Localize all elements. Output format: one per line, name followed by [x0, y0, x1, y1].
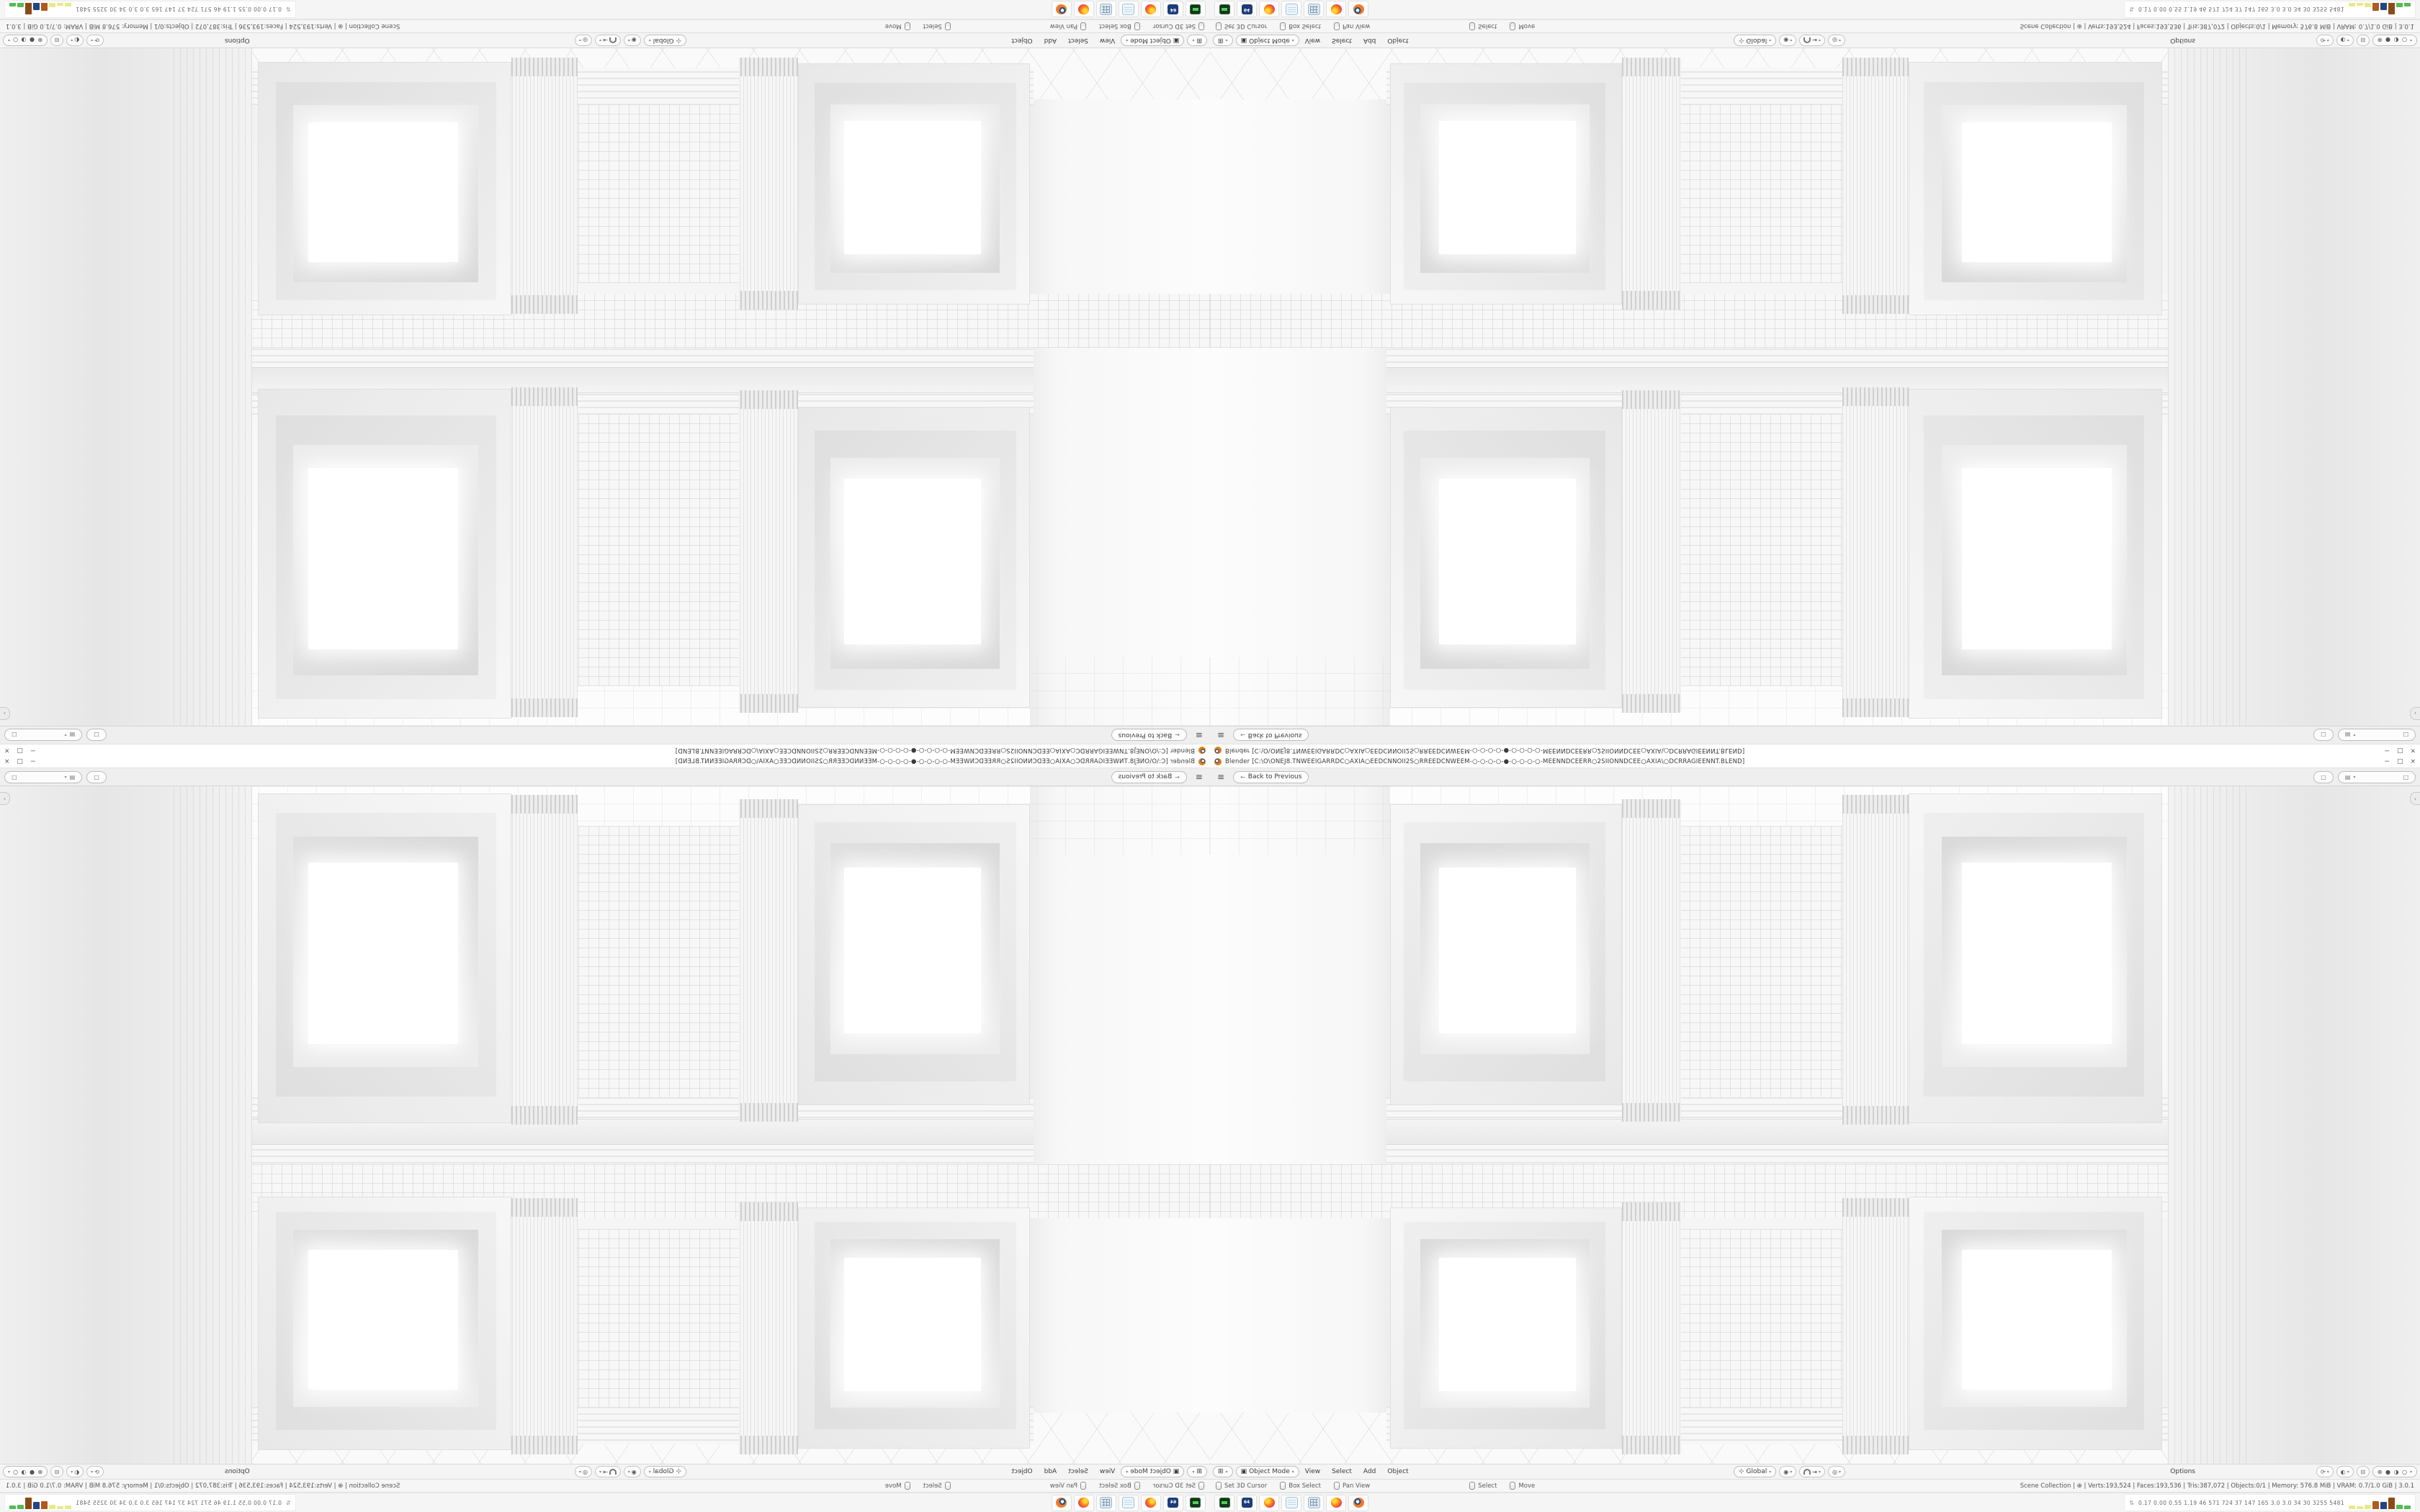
window-glow [1962, 1250, 2112, 1390]
mouse-icon [945, 22, 951, 30]
status-hint-set-3d-cursor: Set 3D Cursor [1153, 22, 1204, 30]
scene-icon: □ [94, 732, 99, 739]
overlays-icon: ◐ [2341, 37, 2346, 44]
minimize-button[interactable]: − [2384, 747, 2390, 754]
viewport-shading-group[interactable]: ⊕ ● ◑ ○ ▾ [3, 35, 48, 46]
snapping-toggle[interactable]: ⇥ ▾ [595, 1466, 621, 1477]
minimize-button[interactable]: − [2384, 758, 2390, 765]
window-titlebar[interactable]: Blender [C:\O\ONEJ8.TNWEEIGARRDC○AXIA○EE… [0, 756, 1210, 768]
chevron-down-icon: ▾ [1819, 38, 1821, 43]
terminal-icon [1191, 1498, 1201, 1508]
terminal-icon [1219, 4, 1230, 14]
topbar-menu-icon[interactable]: ≡ [1214, 730, 1227, 740]
menu-object[interactable]: Object [1005, 1468, 1038, 1475]
graph-bar [49, 3, 55, 7]
windows-taskbar: ⇅ 0.17 0.00 0.55 1.19 46 571 724 37 147 … [1210, 0, 2420, 19]
taskbar-app-calculator[interactable] [1304, 1495, 1324, 1511]
firefox-icon [1264, 1498, 1275, 1508]
menu-object[interactable]: Object [1005, 37, 1038, 44]
magnet-icon [609, 1469, 617, 1475]
graph-bar [2357, 1506, 2363, 1509]
graph-bar [2357, 3, 2363, 6]
taskbar-app-firefox-2[interactable] [1326, 1495, 1346, 1511]
orientation-icon: ⊹ [676, 37, 681, 44]
back-to-previous-button[interactable]: ← Back to Previous [1111, 771, 1187, 783]
scene-left-wall [1210, 48, 1390, 726]
taskbar-app-terminal[interactable] [1214, 1, 1234, 18]
window-frame [258, 62, 511, 315]
chevron-down-icon: ▾ [2327, 1470, 2329, 1475]
shading-modes-icons: ⊕ ● ◑ ○ [12, 37, 42, 44]
taskbar-app-7zip[interactable] [1163, 1, 1183, 18]
window-frame [1390, 63, 1622, 305]
kaleidoscope-stage: Blender [C:\O\ONEJ8.TNWEEIGARRDC○AXIA○EE… [0, 0, 2420, 1512]
taskbar-app-7zip[interactable] [1237, 1495, 1257, 1511]
snap-target-icon: ⇥ [1812, 1469, 1817, 1475]
viewport-header: ⊞ ▾ ▣ Object Mode ▾ View Select Add Obje… [1210, 1464, 2420, 1480]
graph-bar [17, 1505, 24, 1509]
menu-view[interactable]: View [1094, 37, 1121, 44]
restore-button[interactable]: □ [17, 747, 24, 754]
quadrant-bottom-right: Blender [C:\O\ONEJ8.TNWEEIGARRDC○AXIA○EE… [1210, 756, 2420, 1512]
xray-toggle[interactable]: ⊟ [50, 1466, 63, 1477]
transform-orientation-dropdown[interactable]: ⊹ Global ▾ [1734, 35, 1776, 46]
proportional-editing-toggle[interactable]: ◎ ▾ [575, 35, 592, 46]
menu-select[interactable]: Select [1326, 1468, 1358, 1475]
blender-logo-icon [1214, 758, 1222, 765]
back-to-previous-label: Back to Previous [1119, 732, 1173, 739]
quadrant-bottom-left-mirrored: Blender [C:\O\ONEJ8.TNWEEIGARRDC○AXIA○EE… [0, 756, 1210, 1512]
pivot-point-dropdown[interactable]: ◉ ▾ [1779, 1466, 1796, 1477]
chevron-down-icon: ▾ [65, 733, 67, 738]
status-hint-pan-view: Pan View [1050, 22, 1086, 30]
options-dropdown[interactable]: Options [2164, 1468, 2201, 1475]
menu-add[interactable]: Add [1039, 37, 1062, 44]
object-mode-icon: ▣ [1173, 1468, 1180, 1475]
scene-selector[interactable]: □ [2313, 771, 2334, 783]
viewport-header: ⊞ ▾ ▣ Object Mode ▾ View Select Add Obje… [1210, 32, 2420, 48]
show-gizmo-dropdown[interactable]: ⟳ ▾ [86, 35, 104, 46]
blender-logo-icon [1198, 747, 1206, 754]
menu-add[interactable]: Add [1039, 1468, 1062, 1475]
hint-label: Pan View [1343, 23, 1370, 30]
xray-icon: ⊟ [55, 1469, 60, 1475]
7zip-icon [1242, 4, 1252, 14]
close-button[interactable]: × [2410, 758, 2416, 765]
minimize-button[interactable]: − [30, 758, 36, 765]
graph-bar [41, 1501, 48, 1509]
transform-orientation-dropdown[interactable]: ⊹ Global ▾ [1734, 1466, 1776, 1477]
chevron-down-icon: ▾ [1790, 1470, 1792, 1475]
hardware-stats-deskband[interactable]: ⇅ 0.17 0.00 0.55 1.19 46 571 724 37 147 … [2124, 1, 2416, 18]
view-layer-icon: ▤ [2345, 774, 2351, 780]
window-glow [308, 468, 458, 649]
menu-select[interactable]: Select [1326, 37, 1358, 44]
window-glow [1439, 479, 1576, 644]
graph-bar [2388, 1498, 2395, 1509]
chevron-down-icon: ▾ [579, 1470, 581, 1475]
firefox-icon [1331, 4, 1342, 14]
status-hint-move: Move [885, 22, 910, 30]
notepad-icon [1286, 1497, 1298, 1508]
blender-topbar: ≡ ← Back to Previous □ ▤ ▾ □ [1210, 726, 2420, 744]
xray-icon: ⊟ [2360, 1469, 2365, 1475]
taskbar-app-blender[interactable] [1348, 1495, 1368, 1511]
show-gizmo-dropdown[interactable]: ⟳ ▾ [86, 1466, 104, 1477]
shading-modes-icons: ⊕ ● ◑ ○ [2378, 1469, 2408, 1475]
hint-label: Box Select [1099, 1482, 1131, 1490]
menu-add[interactable]: Add [1358, 1468, 1381, 1475]
terminal-icon [1219, 1498, 1230, 1508]
restore-button[interactable]: □ [17, 758, 24, 765]
shading-modes-icons: ⊕ ● ◑ ○ [2378, 37, 2408, 44]
taskbar-app-firefox[interactable] [1141, 1495, 1161, 1511]
xray-toggle[interactable]: ⊟ [2357, 35, 2370, 46]
chevron-down-icon: ▾ [8, 1470, 10, 1475]
blender-window: Blender [C:\O\ONEJ8.TNWEEIGARRDC○AXIA○EE… [0, 0, 1210, 756]
show-overlays-dropdown[interactable]: ◐ ▾ [2336, 35, 2354, 46]
mouse-icon [1280, 22, 1286, 30]
show-gizmo-dropdown[interactable]: ⟳ ▾ [2316, 35, 2334, 46]
taskbar-app-calculator[interactable] [1096, 1495, 1116, 1511]
status-hint-set-3d-cursor: Set 3D Cursor [1153, 1482, 1204, 1490]
pivot-icon: ◉ [1783, 1469, 1788, 1475]
status-hint-box-select: Box Select [1280, 22, 1321, 30]
proportional-editing-toggle[interactable]: ◎ ▾ [1828, 1466, 1845, 1477]
viewport-shading-group[interactable]: ⊕ ● ◑ ○ ▾ [2372, 35, 2417, 46]
7zip-icon [1242, 1498, 1252, 1508]
menu-view[interactable]: View [1299, 37, 1326, 44]
hint-label: Move [1518, 23, 1535, 30]
scene-right-wall [0, 48, 252, 726]
window-frame [258, 793, 511, 1123]
transform-orientation-dropdown[interactable]: ⊹ Global ▾ [644, 1466, 686, 1477]
taskbar-app-notepad[interactable] [1119, 1, 1139, 18]
window-frame [798, 407, 1030, 708]
snapping-toggle[interactable]: ⇥ ▾ [1799, 1466, 1825, 1477]
back-to-previous-button[interactable]: ← Back to Previous [1111, 729, 1187, 742]
view-layer-name-blank [2358, 732, 2400, 739]
mode-dropdown[interactable]: ▣ Object Mode ▾ [1121, 1466, 1184, 1477]
snapping-toggle[interactable]: ⇥ ▾ [595, 35, 621, 46]
chevron-down-icon: ▾ [1192, 38, 1194, 43]
graph-bar [65, 3, 71, 6]
graph-bar [33, 1502, 40, 1509]
window-frame [258, 389, 511, 719]
graph-bar [2372, 3, 2379, 11]
window-glow [308, 863, 458, 1044]
blender-logo-icon [1198, 758, 1206, 765]
window-titlebar[interactable]: Blender [C:\O\ONEJ8.TNWEEIGARRDC○AXIA○EE… [1210, 756, 2420, 768]
xray-icon: ⊟ [2360, 37, 2365, 44]
pivot-point-dropdown[interactable]: ◉ ▾ [624, 35, 641, 46]
chevron-down-icon: ▾ [2410, 38, 2412, 43]
graph-bar [9, 1506, 16, 1509]
transform-orientation-dropdown[interactable]: ⊹ Global ▾ [644, 35, 686, 46]
mouse-icon [945, 1482, 951, 1490]
window-title: Blender [C:\O\ONEJ8.TNWEEIGARRDC○AXIA○EE… [1225, 747, 2375, 754]
taskbar-app-firefox[interactable] [1141, 1, 1161, 18]
chevron-down-icon: ▾ [1839, 38, 1841, 43]
scene-grid-wall-upper [578, 387, 740, 686]
status-hint-set-3d-cursor: Set 3D Cursor [1216, 1482, 1267, 1490]
scene-pilaster [1622, 390, 1681, 713]
window-glow [1962, 863, 2112, 1044]
stats-arrows-icon: ⇅ [286, 1500, 291, 1506]
taskbar-app-blender[interactable] [1052, 1495, 1072, 1511]
window-glow [844, 868, 981, 1033]
sidebar-toggle-tab[interactable]: ‹ [2410, 707, 2420, 720]
blender-icon [1353, 1498, 1364, 1508]
show-overlays-dropdown[interactable]: ◐ ▾ [66, 1466, 84, 1477]
hardware-stats-values: 0.17 0.00 0.55 1.19 46 571 724 37 147 16… [76, 1500, 282, 1506]
mode-dropdown[interactable]: ▣ Object Mode ▾ [1121, 35, 1184, 46]
editor-type-selector[interactable]: ⊞ ▾ [1187, 35, 1207, 46]
proportional-editing-toggle[interactable]: ◎ ▾ [575, 1466, 592, 1477]
taskbar-app-notepad[interactable] [1119, 1495, 1139, 1511]
scene-pilaster [1842, 1198, 1909, 1454]
mouse-icon [1198, 22, 1204, 30]
gizmo-icon: ⟳ [94, 37, 99, 44]
taskbar-app-calculator[interactable] [1096, 1, 1116, 18]
chevron-down-icon: ▾ [2410, 1470, 2412, 1475]
3d-viewport-canvas[interactable]: ‹ [0, 786, 1210, 1464]
scene-pilaster [511, 58, 578, 314]
taskbar-app-terminal[interactable] [1186, 1, 1206, 18]
minimize-button[interactable]: − [30, 747, 36, 754]
menu-add[interactable]: Add [1358, 37, 1381, 44]
scene-left-wall [1030, 48, 1210, 726]
firefox-icon [1146, 1498, 1157, 1508]
mode-dropdown[interactable]: ▣ Object Mode ▾ [1236, 35, 1299, 46]
proportional-icon: ◎ [1832, 37, 1837, 44]
copy-icon: □ [2403, 774, 2408, 780]
status-bar: Set 3D Cursor Box Select Pan View Select [1210, 19, 2420, 32]
object-mode-icon: ▣ [1241, 1468, 1247, 1475]
chevron-down-icon: ▾ [71, 1470, 73, 1475]
menu-view[interactable]: View [1094, 1468, 1121, 1475]
hint-label: Pan View [1343, 1482, 1370, 1490]
gizmo-icon: ⟳ [94, 1469, 99, 1475]
back-to-previous-label: Back to Previous [1119, 773, 1173, 780]
menu-view[interactable]: View [1299, 1468, 1326, 1475]
show-overlays-dropdown[interactable]: ◐ ▾ [2336, 1466, 2354, 1477]
window-glow [1439, 868, 1576, 1033]
options-dropdown[interactable]: Options [219, 37, 256, 44]
view-layer-selector[interactable]: ▤ ▾ □ [4, 729, 82, 742]
copy-icon: □ [12, 732, 17, 739]
proportional-editing-toggle[interactable]: ◎ ▾ [1828, 35, 1845, 46]
editor-type-selector[interactable]: ⊞ ▾ [1213, 1466, 1233, 1477]
status-hint-move: Move [1510, 22, 1535, 30]
scene-statistics: Scene Collection | ⊕ | Verts:193,524 | F… [6, 23, 400, 30]
object-mode-icon: ▣ [1241, 37, 1247, 44]
view-layer-selector[interactable]: ▤ ▾ □ [2338, 729, 2416, 742]
3d-viewport-canvas[interactable]: ‹ [1210, 786, 2420, 1464]
scene-pilaster [739, 390, 798, 713]
mouse-icon [1080, 22, 1086, 30]
viewport-shading-group[interactable]: ⊕ ● ◑ ○ ▾ [2372, 1466, 2417, 1477]
window-frame [1909, 793, 2162, 1123]
view-layer-icon: ▤ [70, 774, 76, 780]
scene-right-wall [2168, 786, 2420, 1464]
menu-select[interactable]: Select [1062, 37, 1094, 44]
window-titlebar[interactable]: Blender [C:\O\ONEJ8.TNWEEIGARRDC○AXIA○EE… [1210, 744, 2420, 756]
orientation-icon: ⊹ [676, 1468, 681, 1475]
view-layer-selector[interactable]: ▤ ▾ □ [2338, 771, 2416, 783]
graph-bar [2404, 1506, 2411, 1509]
viewport-shading-group[interactable]: ⊕ ● ◑ ○ ▾ [3, 1466, 48, 1477]
sidebar-toggle-tab[interactable]: ‹ [0, 707, 10, 720]
taskbar-app-blender[interactable] [1052, 1, 1072, 18]
window-frame [1390, 407, 1622, 708]
scene-grid-wall-lower [578, 1229, 740, 1413]
stats-arrows-icon: ⇅ [2129, 1500, 2134, 1506]
hint-label: Select [923, 1482, 942, 1490]
taskbar-graph [2349, 1496, 2411, 1509]
status-hint-box-select: Box Select [1099, 1482, 1140, 1490]
chevron-down-icon: ▾ [65, 775, 67, 780]
pivot-point-dropdown[interactable]: ◉ ▾ [624, 1466, 641, 1477]
options-dropdown[interactable]: Options [2164, 37, 2201, 44]
close-button[interactable]: × [2410, 747, 2416, 754]
mouse-icon [905, 1482, 910, 1490]
magnet-icon [1803, 1469, 1811, 1475]
menu-object[interactable]: Object [1381, 37, 1414, 44]
restore-button[interactable]: □ [2397, 747, 2403, 754]
taskbar-app-terminal[interactable] [1214, 1495, 1234, 1511]
menu-object[interactable]: Object [1381, 1468, 1414, 1475]
window-title: Blender [C:\O\ONEJ8.TNWEEIGARRDC○AXIA○EE… [1225, 758, 2375, 765]
editor-type-selector[interactable]: ⊞ ▾ [1213, 35, 1233, 46]
orientation-label: Global [1747, 37, 1767, 44]
topbar-menu-icon[interactable]: ≡ [1214, 772, 1227, 782]
orientation-icon: ⊹ [1739, 37, 1744, 44]
hint-label: Set 3D Cursor [1153, 23, 1196, 30]
taskbar-app-firefox-2[interactable] [1074, 1, 1094, 18]
taskbar-graph [9, 3, 71, 16]
topbar-menu-icon[interactable]: ≡ [1193, 730, 1206, 740]
back-to-previous-label: Back to Previous [1248, 773, 1302, 780]
scene-grid-wall-lower [1680, 99, 1842, 283]
graph-bar [25, 3, 32, 14]
close-button[interactable]: × [4, 747, 10, 754]
chevron-down-icon: ▾ [2347, 38, 2349, 43]
show-overlays-dropdown[interactable]: ◐ ▾ [66, 35, 84, 46]
scene-statistics: Scene Collection | ⊕ | Verts:193,524 | F… [2020, 23, 2414, 30]
taskbar-app-calculator[interactable] [1304, 1, 1324, 18]
copy-icon: □ [12, 774, 17, 780]
sidebar-toggle-tab[interactable]: ‹ [0, 792, 10, 805]
mouse-icon [1334, 22, 1340, 30]
window-glow [844, 121, 981, 253]
restore-button[interactable]: □ [2397, 758, 2403, 765]
options-dropdown[interactable]: Options [219, 1468, 256, 1475]
scene-selector[interactable]: □ [2313, 729, 2334, 742]
chevron-down-icon: ▾ [91, 1470, 93, 1475]
mode-dropdown[interactable]: ▣ Object Mode ▾ [1236, 1466, 1299, 1477]
editor-type-selector[interactable]: ⊞ ▾ [1187, 1466, 1207, 1477]
window-glow [844, 1258, 981, 1390]
back-to-previous-button[interactable]: ← Back to Previous [1233, 771, 1309, 783]
taskbar-app-firefox-2[interactable] [1326, 1, 1346, 18]
editor-type-icon: ⊞ [1218, 37, 1224, 44]
window-glow [1439, 121, 1576, 253]
window-frame [798, 804, 1030, 1105]
scene-left-wall [1210, 786, 1390, 1464]
back-arrow-icon: ← [1175, 774, 1180, 780]
scene-selector[interactable]: □ [86, 729, 107, 742]
menu-select[interactable]: Select [1062, 1468, 1094, 1475]
chevron-down-icon: ▾ [8, 38, 10, 43]
view-layer-selector[interactable]: ▤ ▾ □ [4, 771, 82, 783]
xray-toggle[interactable]: ⊟ [2357, 1466, 2370, 1477]
hint-label: Select [923, 23, 942, 30]
hardware-stats-deskband[interactable]: ⇅ 0.17 0.00 0.55 1.19 46 571 724 37 147 … [4, 1, 296, 18]
taskbar-app-notepad[interactable] [1281, 1, 1301, 18]
mode-label: Object Mode [1249, 37, 1290, 44]
3d-viewport-canvas[interactable]: ‹ [0, 48, 1210, 726]
show-gizmo-dropdown[interactable]: ⟳ ▾ [2316, 1466, 2334, 1477]
chevron-down-icon: ▾ [628, 38, 630, 43]
close-button[interactable]: × [4, 758, 10, 765]
blender-window: Blender [C:\O\ONEJ8.TNWEEIGARRDC○AXIA○EE… [1210, 756, 2420, 1512]
graph-bar [2404, 3, 2411, 6]
snapping-toggle[interactable]: ⇥ ▾ [1799, 35, 1825, 46]
view-layer-icon: ▤ [2345, 732, 2351, 739]
firefox-icon [1146, 4, 1157, 14]
window-frame [1909, 62, 2162, 315]
chevron-down-icon: ▾ [2347, 1470, 2349, 1475]
taskbar-app-blender[interactable] [1348, 1, 1368, 18]
scene-selector[interactable]: □ [86, 771, 107, 783]
mouse-icon [1469, 1482, 1475, 1490]
hardware-stats-deskband[interactable]: ⇅ 0.17 0.00 0.55 1.19 46 571 724 37 147 … [4, 1494, 296, 1511]
snap-target-icon: ⇥ [603, 1469, 608, 1475]
chevron-down-icon: ▾ [1839, 1470, 1841, 1475]
back-to-previous-button[interactable]: ← Back to Previous [1233, 729, 1309, 742]
scene-right-wall [2168, 48, 2420, 726]
editor-type-icon: ⊞ [1218, 1468, 1224, 1475]
window-titlebar[interactable]: Blender [C:\O\ONEJ8.TNWEEIGARRDC○AXIA○EE… [0, 744, 1210, 756]
taskbar-app-firefox[interactable] [1259, 1, 1279, 18]
taskbar-app-7zip[interactable] [1237, 1, 1257, 18]
pivot-point-dropdown[interactable]: ◉ ▾ [1779, 35, 1796, 46]
status-hint-move: Move [1510, 1482, 1535, 1490]
window-glow [1962, 468, 2112, 649]
blender-topbar: ≡ ← Back to Previous □ ▤ ▾ □ [0, 768, 1210, 786]
mouse-icon [1198, 1482, 1204, 1490]
blender-window: Blender [C:\O\ONEJ8.TNWEEIGARRDC○AXIA○EE… [0, 756, 1210, 1512]
topbar-menu-icon[interactable]: ≡ [1193, 772, 1206, 782]
firefox-icon [1264, 4, 1275, 14]
magnet-icon [1803, 37, 1811, 43]
xray-toggle[interactable]: ⊟ [50, 35, 63, 46]
taskbar-app-notepad[interactable] [1281, 1495, 1301, 1511]
chevron-down-icon: ▾ [599, 1470, 601, 1475]
taskbar-app-firefox[interactable] [1259, 1495, 1279, 1511]
taskbar-app-firefox-2[interactable] [1074, 1495, 1094, 1511]
hardware-stats-deskband[interactable]: ⇅ 0.17 0.00 0.55 1.19 46 571 724 37 147 … [2124, 1494, 2416, 1511]
status-hint-move: Move [885, 1482, 910, 1490]
taskbar-app-terminal[interactable] [1186, 1495, 1206, 1511]
3d-viewport-canvas[interactable]: ‹ [1210, 48, 2420, 726]
graph-bar [2380, 3, 2387, 10]
taskbar-app-7zip[interactable] [1163, 1495, 1183, 1511]
mouse-icon [1134, 22, 1140, 30]
sidebar-toggle-tab[interactable]: ‹ [2410, 792, 2420, 805]
mouse-icon [1510, 1482, 1515, 1490]
